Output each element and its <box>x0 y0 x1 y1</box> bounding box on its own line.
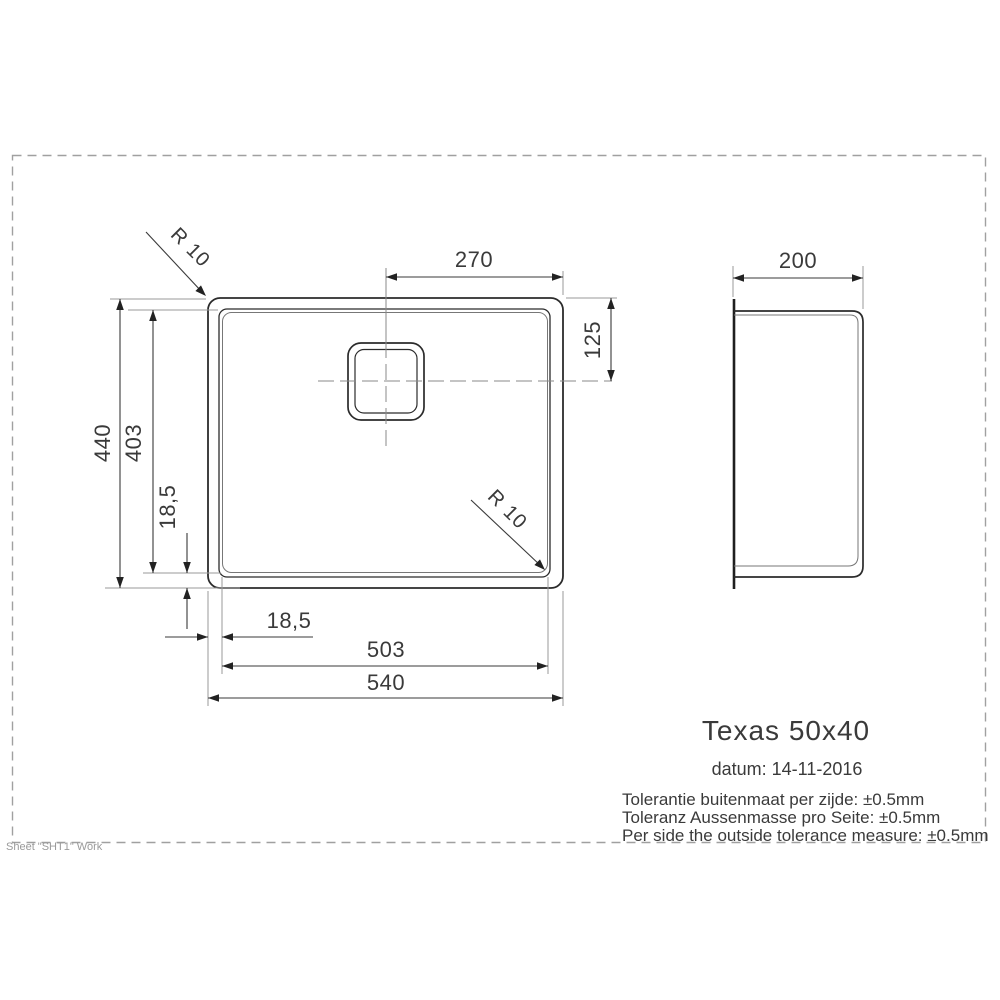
dim-125: 125 <box>580 298 615 381</box>
radius-bottom-right-label: R 10 <box>483 486 531 534</box>
dim-440-label: 440 <box>90 424 115 462</box>
sink-bowl-edge <box>223 313 548 573</box>
arrowhead-up-icon <box>116 299 124 310</box>
dim-270: 270 <box>386 247 563 281</box>
arrowhead-up-icon <box>149 310 157 321</box>
arrowhead-right-icon <box>852 274 863 282</box>
drawing-canvas: 270 125 200 440 403 18,5 <box>0 0 1000 1000</box>
radius-callout-top-left: R 10 <box>146 224 214 296</box>
dim-540: 540 <box>208 670 563 702</box>
dim-18-5-vertical: 18,5 <box>155 485 191 629</box>
arrowhead-left-icon <box>222 662 233 670</box>
side-view-bowl-line <box>734 315 858 566</box>
product-title: Texas 50x40 <box>702 715 870 746</box>
arrowhead-right-icon <box>197 633 208 641</box>
dim-125-label: 125 <box>580 321 605 359</box>
arrowhead-left-icon <box>222 633 233 641</box>
date-line: datum: 14-11-2016 <box>712 759 863 779</box>
tolerance-line-nl: Tolerantie buitenmaat per zijde: ±0.5mm <box>622 790 924 809</box>
arrowhead-left-icon <box>733 274 744 282</box>
dim-18-5h-label: 18,5 <box>267 608 312 633</box>
dim-440: 440 <box>90 299 124 588</box>
plan-view <box>208 268 612 588</box>
title-block: Texas 50x40 datum: 14-11-2016 Tolerantie… <box>622 715 989 845</box>
side-view <box>734 299 863 589</box>
dim-503: 503 <box>222 637 548 670</box>
arrowhead-right-icon <box>537 662 548 670</box>
arrowhead-down-icon <box>607 370 615 381</box>
arrowhead-down-icon <box>183 562 191 573</box>
radius-top-left-label: R 10 <box>166 224 214 272</box>
arrowhead-down-icon <box>149 562 157 573</box>
arrowhead-right-icon <box>552 273 563 281</box>
arrowhead-up-icon <box>183 588 191 599</box>
dim-503-label: 503 <box>367 637 405 662</box>
side-view-body-outline <box>734 311 863 577</box>
radius-callout-bottom-right: R 10 <box>471 486 545 570</box>
arrowhead-up-icon <box>607 298 615 309</box>
tolerance-line-de: Toleranz Aussenmasse pro Seite: ±0.5mm <box>622 808 940 827</box>
dim-403-label: 403 <box>121 424 146 462</box>
tolerance-line-en: Per side the outside tolerance measure: … <box>622 826 989 845</box>
dim-403: 403 <box>121 310 157 573</box>
dim-200-label: 200 <box>779 248 817 273</box>
arrowhead-left-icon <box>208 694 219 702</box>
technical-drawing-sheet: 270 125 200 440 403 18,5 <box>0 0 1000 1000</box>
arrowhead-down-icon <box>116 577 124 588</box>
arrowhead-left-icon <box>386 273 397 281</box>
arrowhead-right-icon <box>552 694 563 702</box>
sheet-label: Sheet "SHT1" Work <box>6 841 103 853</box>
dim-18-5v-label: 18,5 <box>155 485 180 530</box>
dim-200: 200 <box>733 248 863 282</box>
dim-540-label: 540 <box>367 670 405 695</box>
dim-270-label: 270 <box>455 247 493 272</box>
